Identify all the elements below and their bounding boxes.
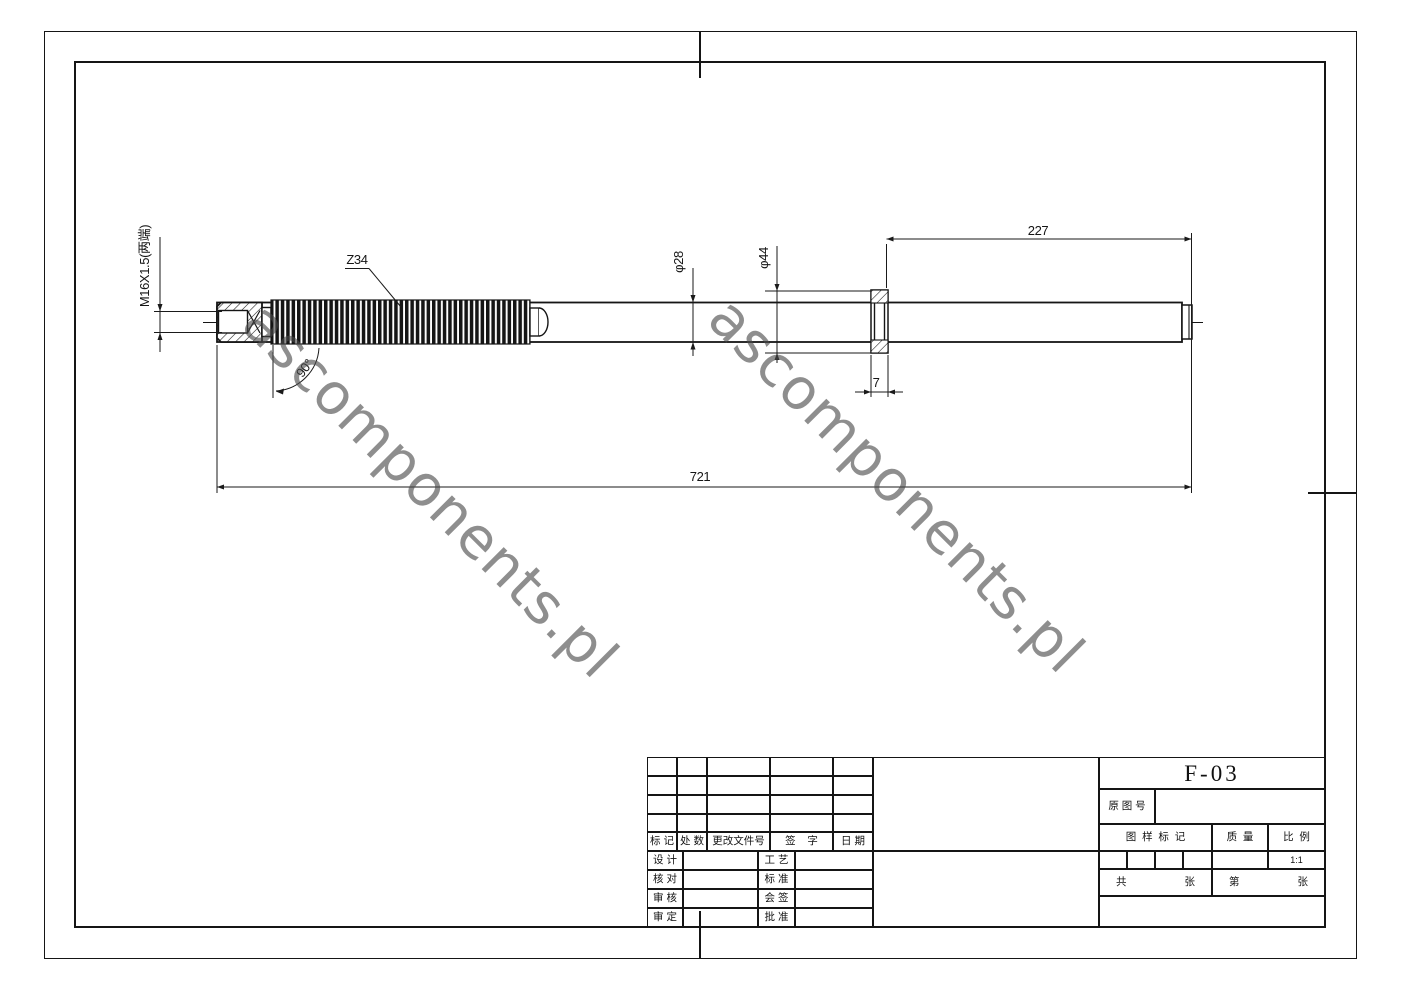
revision-cell (707, 814, 770, 832)
original-no-label: 原 图 号 (1099, 789, 1155, 824)
rev-header-signature: 签 字 (770, 832, 833, 851)
dim-arrow (691, 295, 696, 303)
sign-label-design: 设 计 (647, 851, 683, 870)
mass-label: 质 量 (1212, 824, 1268, 851)
revision-cell (833, 814, 873, 832)
sign-value (795, 851, 873, 870)
sign-value (683, 851, 758, 870)
dim-arrow (864, 390, 871, 395)
mark-cell (1099, 851, 1127, 869)
dim-angle: 90° (293, 356, 316, 380)
rev-header-mark: 标 记 (647, 832, 677, 851)
mark-cell (1127, 851, 1155, 869)
drawing-sheet: M16X1.5(两端) Z34 90° φ28 φ44 227 (0, 0, 1403, 992)
sign-value (795, 889, 873, 908)
revision-cell (647, 776, 677, 795)
rev-header-docno: 更改文件号 (707, 832, 770, 851)
revision-cell (770, 757, 833, 776)
collar-hatch-bottom (871, 340, 888, 353)
titleblock-middle-lower (873, 851, 1099, 927)
revision-cell (770, 814, 833, 832)
revision-cell (707, 776, 770, 795)
dim-arrow (1185, 237, 1192, 242)
sign-label-standard: 标 准 (758, 870, 795, 889)
scale-label: 比 例 (1268, 824, 1325, 851)
revision-cell (833, 757, 873, 776)
tapped-hole (219, 311, 248, 334)
dim-arrow (217, 485, 224, 490)
sheet-number-cell: 第 张 (1212, 869, 1325, 896)
sheets-total-cell: 共 张 (1099, 869, 1212, 896)
dim-arrow (887, 237, 894, 242)
sign-label-process: 工 艺 (758, 851, 795, 870)
rev-header-date: 日 期 (833, 832, 873, 851)
dim-total-length: 721 (690, 469, 711, 484)
titleblock-middle-upper (873, 757, 1099, 851)
revision-cell (647, 757, 677, 776)
revision-cell (770, 776, 833, 795)
sign-value (683, 870, 758, 889)
dim-arrow (775, 284, 780, 291)
revision-cell (677, 757, 707, 776)
pattern-mark-label: 图 样 标 记 (1099, 824, 1212, 851)
dim-arrow (691, 342, 696, 350)
sign-label-approve2: 审 定 (647, 908, 683, 927)
dim-shaft-diameter: φ28 (671, 251, 686, 273)
runout-cylinder (530, 308, 539, 336)
sheet-number-unit: 张 (1298, 877, 1309, 888)
sign-value (683, 889, 758, 908)
sign-label-check: 核 对 (647, 870, 683, 889)
dim-thread-spec: M16X1.5(两端) (137, 225, 152, 307)
sign-label-countersign: 会 签 (758, 889, 795, 908)
dim-right-length: 227 (1028, 223, 1049, 238)
revision-cell (833, 795, 873, 814)
sign-value (683, 908, 758, 927)
sign-label-review: 审 核 (647, 889, 683, 908)
revision-cell (677, 814, 707, 832)
revision-cell (647, 795, 677, 814)
sign-value (795, 870, 873, 889)
mark-cell (1155, 851, 1183, 869)
revision-cell (677, 795, 707, 814)
revision-cell (770, 795, 833, 814)
revision-cell (707, 757, 770, 776)
scale-value: 1:1 (1268, 851, 1325, 869)
end-cap (1182, 305, 1192, 339)
revision-cell (677, 776, 707, 795)
sheet-number-label: 第 (1229, 877, 1240, 888)
dim-arrow (888, 390, 895, 395)
collar-hatch-top (871, 290, 888, 303)
part-number: F-03 (1099, 757, 1325, 789)
dim-arrow (775, 353, 780, 360)
sign-value (795, 908, 873, 927)
rev-header-count: 处 数 (677, 832, 707, 851)
mass-value (1212, 851, 1268, 869)
dim-tooth-count: Z34 (346, 252, 367, 267)
titleblock-bottom-empty (1099, 896, 1325, 927)
revision-cell (707, 795, 770, 814)
dim-arrow (158, 304, 163, 312)
dim-arrow (276, 389, 284, 395)
original-no-value (1155, 789, 1325, 824)
neck-segment (262, 308, 271, 337)
mark-cell (1183, 851, 1212, 869)
revision-cell (647, 814, 677, 832)
sign-label-approve: 批 准 (758, 908, 795, 927)
sheets-total-unit: 张 (1185, 877, 1196, 888)
dim-arrow (158, 333, 163, 341)
sheets-total-label: 共 (1116, 877, 1127, 888)
dim-collar-width: 7 (873, 375, 880, 390)
revision-cell (833, 776, 873, 795)
dim-collar-diameter: φ44 (756, 247, 771, 269)
dim-arrow (1185, 485, 1192, 490)
